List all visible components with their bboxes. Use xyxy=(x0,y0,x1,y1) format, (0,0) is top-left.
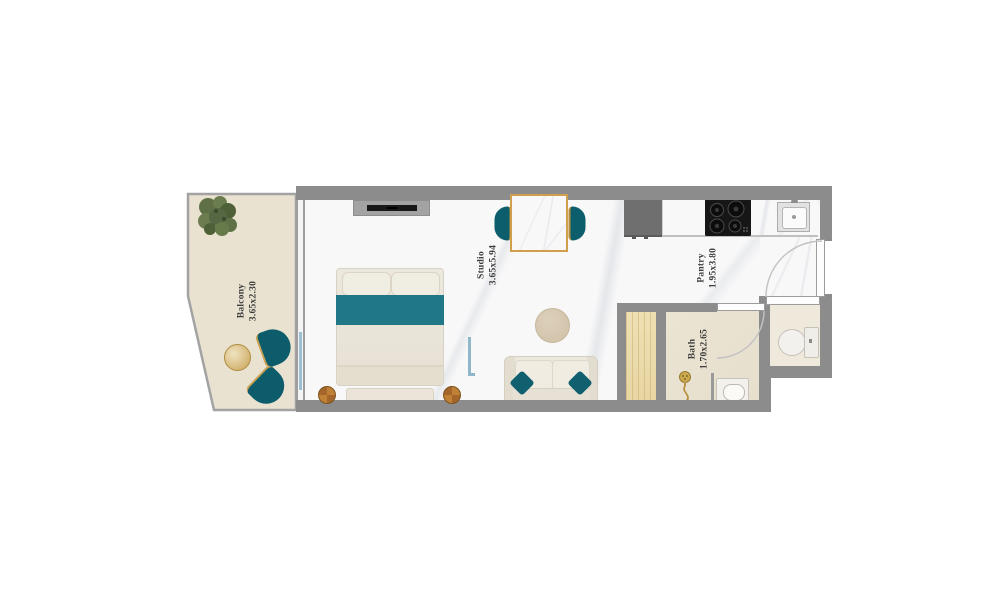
pantry-label-name: Pantry xyxy=(696,248,708,288)
toilet-flush-button xyxy=(809,339,812,343)
potted-plant xyxy=(194,195,246,241)
kitchen-sink-drain xyxy=(792,215,796,219)
bed-pillow-left xyxy=(342,272,391,296)
pantry-label-dims: 1.95x3.80 xyxy=(708,248,720,288)
balcony-window-glass xyxy=(299,332,302,390)
balcony-label-name: Balcony xyxy=(236,281,248,321)
pantry-label: Pantry 1.95x3.80 xyxy=(696,248,721,288)
bath-door-leaf xyxy=(717,303,765,311)
glass-partition-line xyxy=(468,337,471,375)
wardrobe xyxy=(625,310,657,402)
balcony-side-table xyxy=(224,344,251,371)
studio-label-dims: 3.65x5.94 xyxy=(488,245,500,285)
tv-stand-notch xyxy=(387,207,397,209)
nightstand-right xyxy=(443,386,461,404)
refrigerator-foot-right xyxy=(644,237,648,239)
tv-screen xyxy=(367,205,417,211)
balcony-label-dims: 3.65x2.30 xyxy=(248,281,260,321)
bath-label-dims: 1.70x2.65 xyxy=(699,329,711,369)
wall-bath-top xyxy=(617,303,717,312)
bath-label-name: Bath xyxy=(687,329,699,369)
refrigerator xyxy=(624,200,662,237)
glass-partition xyxy=(468,337,476,377)
gas-stove xyxy=(705,199,751,236)
bed-runner xyxy=(336,295,444,325)
balcony-label: Balcony 3.65x2.30 xyxy=(236,281,261,321)
dining-chair-left xyxy=(495,207,512,241)
bed xyxy=(336,268,444,386)
wall-wardrobe-right xyxy=(656,303,666,403)
bed-pillow-right xyxy=(391,272,440,296)
wall-wc-bottom xyxy=(762,366,832,378)
toilet xyxy=(778,327,818,356)
entry-door-leaf xyxy=(816,239,825,297)
toilet-bowl xyxy=(778,329,806,356)
shower-glass xyxy=(711,373,714,403)
nightstand-left xyxy=(318,386,336,404)
sofa xyxy=(504,356,598,405)
vanity-basin xyxy=(723,384,745,401)
wall-right-upper xyxy=(820,186,832,241)
bath-label: Bath 1.70x2.65 xyxy=(687,329,712,369)
faucet-icon xyxy=(791,200,798,203)
refrigerator-foot-left xyxy=(632,237,636,239)
kitchen-sink xyxy=(777,202,810,232)
bed-foot-throw xyxy=(338,367,442,385)
tv-unit xyxy=(353,200,430,216)
studio-label-name: Studio xyxy=(476,245,488,285)
round-rug xyxy=(535,308,570,343)
wall-bottom xyxy=(296,400,771,412)
floor-plan: Balcony 3.65x2.30 Studio 3.65x5.94 Pantr… xyxy=(0,0,1000,605)
studio-label: Studio 3.65x5.94 xyxy=(476,245,501,285)
dining-table xyxy=(510,194,568,252)
wall-wardrobe-left xyxy=(617,303,626,403)
glass-partition-foot xyxy=(468,373,475,376)
balcony-window xyxy=(296,200,305,400)
wc-door-leaf xyxy=(766,296,820,305)
